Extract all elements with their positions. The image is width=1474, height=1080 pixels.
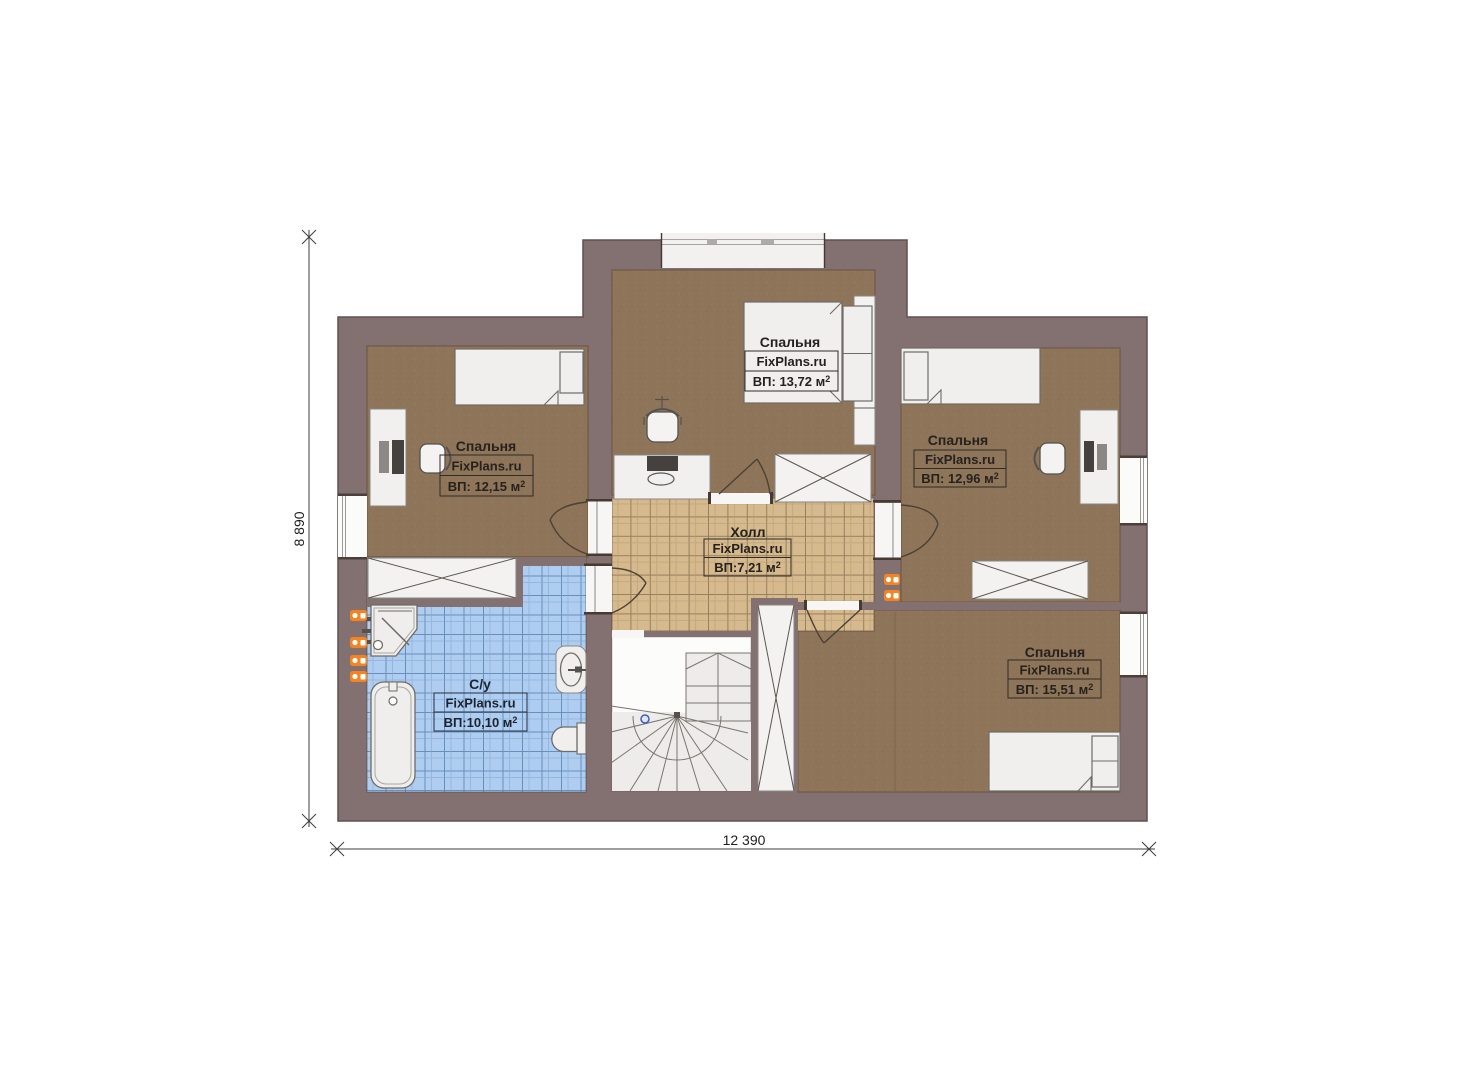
svg-text:ВП: 13,72 м2: ВП: 13,72 м2 bbox=[753, 374, 830, 389]
svg-text:FixPlans.ru: FixPlans.ru bbox=[925, 452, 995, 467]
svg-text:Спальня: Спальня bbox=[456, 438, 516, 454]
svg-text:FixPlans.ru: FixPlans.ru bbox=[756, 354, 826, 369]
svg-text:FixPlans.ru: FixPlans.ru bbox=[451, 459, 521, 474]
svg-text:8 890: 8 890 bbox=[291, 511, 307, 546]
svg-text:FixPlans.ru: FixPlans.ru bbox=[712, 541, 782, 556]
svg-text:Спальня: Спальня bbox=[1025, 644, 1085, 660]
svg-text:ВП: 12,96 м2: ВП: 12,96 м2 bbox=[921, 471, 998, 486]
svg-text:С/у: С/у bbox=[469, 676, 491, 692]
svg-text:ВП: 12,15 м2: ВП: 12,15 м2 bbox=[448, 479, 525, 494]
svg-text:Спальня: Спальня bbox=[928, 432, 988, 448]
svg-text:ВП: 15,51 м2: ВП: 15,51 м2 bbox=[1016, 682, 1093, 697]
svg-text:Холл: Холл bbox=[730, 524, 765, 540]
svg-text:12 390: 12 390 bbox=[723, 832, 766, 848]
svg-text:FixPlans.ru: FixPlans.ru bbox=[445, 696, 515, 711]
svg-text:ВП:10,10 м2: ВП:10,10 м2 bbox=[444, 715, 518, 730]
svg-text:FixPlans.ru: FixPlans.ru bbox=[1019, 663, 1089, 678]
svg-text:Спальня: Спальня bbox=[760, 334, 820, 350]
svg-text:ВП:7,21 м2: ВП:7,21 м2 bbox=[714, 560, 781, 575]
